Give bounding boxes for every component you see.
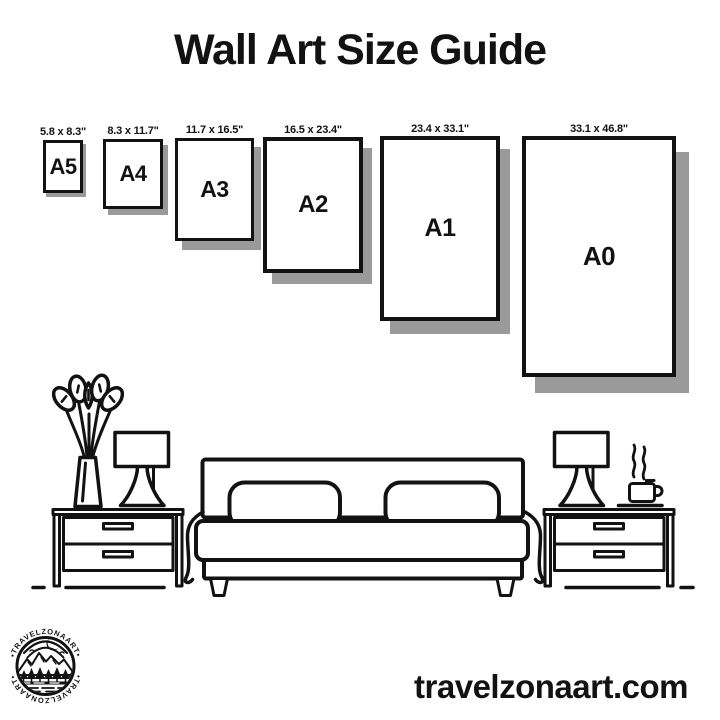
frame-size-label: A4: [119, 161, 146, 187]
coffee-cup-icon: [619, 445, 663, 506]
size-frame-a2: 16.5 x 23.4" A2: [263, 137, 363, 273]
frame-dimensions-label: 11.7 x 16.5": [186, 124, 243, 136]
frame-dimensions-label: 16.5 x 23.4": [284, 124, 342, 136]
bed-icon: [185, 460, 543, 596]
frame-dimensions-label: 5.8 x 8.3": [40, 126, 86, 138]
table-lamp-left-icon: [115, 433, 169, 506]
table-lamp-right-icon: [555, 433, 609, 506]
nightstand-left-icon: [53, 510, 183, 587]
frame-dimensions-label: 23.4 x 33.1": [411, 123, 469, 135]
frame-size-label: A3: [200, 176, 228, 203]
frame-size-label: A1: [425, 214, 456, 243]
frame-dimensions-label: 8.3 x 11.7": [107, 125, 158, 137]
frame-size-label: A2: [298, 191, 328, 219]
size-frame-a1: 23.4 x 33.1" A1: [380, 136, 500, 321]
size-frame-a4: 8.3 x 11.7" A4: [103, 139, 163, 209]
frame-dimensions-label: 33.1 x 46.8": [570, 123, 628, 135]
size-frame-a3: 11.7 x 16.5" A3: [175, 138, 254, 241]
frame-size-label: A0: [583, 241, 615, 272]
frame-size-label: A5: [49, 154, 76, 180]
brand-logo-badge: •TRAVELZONAART• •TRAVELZONAART•: [8, 627, 83, 705]
size-frame-a0: 33.1 x 46.8" A0: [522, 136, 676, 377]
size-frame-a5: 5.8 x 8.3" A5: [43, 140, 83, 193]
nightstand-right-icon: [544, 510, 674, 587]
